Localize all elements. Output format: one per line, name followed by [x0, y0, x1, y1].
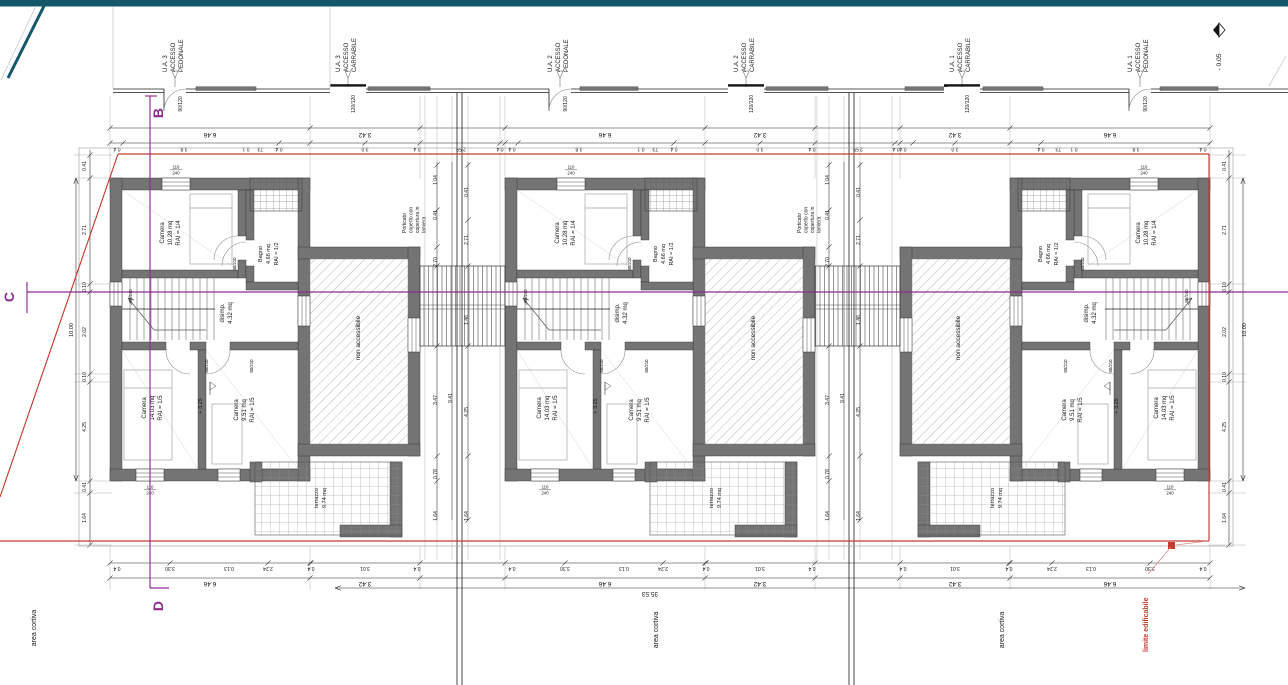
window	[1010, 296, 1022, 326]
sliding-gate-leaf	[728, 84, 764, 86]
room-label: non accessibile	[750, 315, 757, 360]
room-label: Bagno	[258, 246, 264, 262]
wall	[693, 178, 705, 481]
window	[505, 282, 517, 306]
dim-label: 0.41	[825, 210, 831, 220]
access-label-line: ACCESSO	[958, 42, 964, 72]
dim-label: 1.64	[825, 511, 831, 521]
window-size-den: 240	[1140, 170, 1148, 175]
room-label: Camera	[555, 222, 561, 244]
dim-label: 6.46	[598, 580, 611, 587]
room-label: RAI = 1/2	[274, 242, 280, 265]
wall	[517, 270, 633, 278]
porticato-note: Porticato	[797, 213, 803, 233]
area-cortiva-label: area cortiva	[653, 612, 660, 649]
dim-label: 0.4	[307, 565, 314, 571]
room-label: RAI = 1/5	[645, 397, 651, 423]
door-size: 80/210	[1108, 359, 1113, 373]
dim-label: 0.13	[1086, 565, 1096, 571]
dim-label: 1.64	[82, 513, 88, 523]
door-size: 80/210	[249, 359, 254, 373]
room-label: 9.51 mq	[1070, 399, 1076, 421]
room-label: RAI = 1/2	[669, 242, 675, 265]
dim-label: 2.71	[464, 235, 470, 245]
dim-label: 0.4	[808, 146, 815, 152]
dim-label: 9.41	[840, 393, 846, 403]
dim-label: 10.00	[69, 323, 75, 337]
access-label-line: PEDONALE	[179, 39, 185, 72]
dim-label: 3.47	[825, 395, 831, 405]
gate-size-label: 90/120	[1143, 96, 1149, 112]
wall	[298, 178, 310, 481]
gate-size-label: 90/120	[563, 96, 569, 112]
dim-label: 3.0	[756, 146, 763, 152]
dim-label: 1.64	[1222, 513, 1228, 523]
dim-label: .73	[257, 146, 264, 152]
dim-label: 3.01	[755, 565, 765, 571]
dim-label: 0.1	[637, 146, 644, 152]
window-size-num: 110	[568, 165, 575, 170]
dim-label: 3.42	[358, 131, 371, 138]
window-size-num: 110	[1167, 485, 1174, 490]
viewport-top-bar	[0, 0, 1288, 7]
section-marker-b: B	[150, 108, 166, 118]
room-label: Bagno	[653, 246, 659, 262]
window-size: 80/240	[523, 289, 528, 303]
wall	[505, 178, 517, 481]
boundary-label: limite edificabile	[1143, 597, 1150, 652]
room-label: 9.51 mq	[242, 399, 248, 421]
window	[1080, 469, 1102, 481]
room-label: Camera	[629, 399, 635, 421]
gate-opening	[944, 87, 980, 95]
access-label-line: CARRABILE	[352, 38, 358, 72]
dim-label: 4.25	[464, 407, 470, 417]
wall	[517, 342, 561, 350]
porticato-note: coperto con	[409, 207, 415, 233]
window-size-den: 240	[541, 490, 549, 495]
wall	[1066, 266, 1074, 282]
room-label: 4.66 mq	[1046, 244, 1052, 264]
dim-label: 2.71	[1222, 225, 1228, 235]
dim-label: 3.47	[433, 395, 439, 405]
dim-label: 0.41	[82, 482, 88, 492]
fence-wall	[983, 87, 1043, 91]
room-label: RAI = 1/2	[1054, 242, 1060, 265]
dim-label: 6.46	[598, 131, 611, 138]
access-label-unit: U.A. 2	[548, 55, 554, 72]
room-label: 10.28 mq	[563, 220, 569, 245]
dim-label: 3.42	[358, 580, 371, 587]
dim-label: 0.41	[433, 210, 439, 220]
wall	[230, 342, 298, 350]
wall	[1114, 342, 1130, 350]
window-size-den: 240	[172, 170, 180, 175]
dim-label: 0.13	[224, 565, 234, 571]
access-label-unit: U.A. 1	[1128, 55, 1134, 72]
dim-label: 0.78	[825, 469, 831, 479]
dim-label: 0.13	[619, 565, 629, 571]
window	[693, 296, 705, 326]
dim-label: 0.41	[1222, 482, 1228, 492]
window	[408, 318, 420, 352]
wall	[238, 190, 246, 236]
room-label: 4.32 mq	[623, 302, 629, 324]
room-label: RAI = 1/5	[158, 395, 164, 421]
gate-opening	[330, 87, 366, 95]
fence-wall	[1160, 87, 1218, 91]
dim-label: 0.10	[82, 372, 88, 382]
room-label: non accessibile	[355, 315, 362, 360]
dim-label: 1.46	[856, 315, 862, 325]
room-label: non accessibile	[955, 315, 962, 360]
access-label-line: ACCESSO	[344, 42, 350, 72]
wall	[1154, 342, 1198, 350]
dim-label: 1.46	[464, 315, 470, 325]
gate-opening	[164, 87, 186, 95]
access-label-line: CARRABILE	[966, 38, 972, 72]
dim-label: 3.8	[180, 146, 187, 152]
window-size: 80/240	[1184, 289, 1189, 303]
room-label: RAI = 1/4	[176, 220, 182, 246]
boundary-leader-dot	[1168, 542, 1175, 549]
sliding-gate-leaf	[944, 84, 980, 86]
wall	[246, 282, 298, 290]
area-cortiva-label: area cortiva	[999, 612, 1006, 649]
porticato-note: lamiera	[817, 216, 823, 233]
dim-label: 2.02	[1222, 327, 1228, 337]
window-size-den: 240	[1166, 490, 1174, 495]
dim-label: 2.71	[82, 225, 88, 235]
dim-label: 0.4	[413, 146, 420, 152]
room-label: 4.66 mq	[661, 244, 667, 264]
dim-label: 0.4	[892, 146, 899, 152]
room-label: terrazzo	[990, 488, 996, 508]
room-label: 14.03 mq	[150, 395, 156, 420]
door-size: 80/210	[627, 257, 632, 271]
dim-label: 3.0	[951, 146, 958, 152]
access-label-line: CARRABILE	[750, 38, 756, 72]
dim-label: 0.41	[856, 187, 862, 197]
dim-label: 3.42	[948, 580, 961, 587]
dim-label: 0.1	[242, 146, 249, 152]
dim-label: 6.46	[1103, 131, 1116, 138]
dim-label: 4.25	[856, 407, 862, 417]
dim-label: 4.25	[82, 422, 88, 432]
wall	[238, 260, 246, 278]
bath-tiles	[645, 178, 697, 211]
floor-plan-canvas: + 3.25Camera10.28 mqRAI = 1/4Bagno4.66 m…	[0, 0, 1288, 685]
window-size-num: 110	[1141, 165, 1148, 170]
window	[1130, 178, 1158, 190]
dim-label: 0.4	[1199, 565, 1206, 571]
room-label: RAI = 1/5	[553, 395, 559, 421]
porticato-note: copertura in	[415, 206, 421, 233]
dim-label: 3.30	[560, 565, 570, 571]
dim-label: 2.55	[853, 146, 863, 152]
fence-wall	[196, 87, 256, 91]
wall	[1022, 342, 1090, 350]
room-label: Camera	[160, 222, 166, 244]
gate-opening	[549, 87, 571, 95]
section-marker-c: C	[1, 292, 17, 302]
porticato-note: lamiera	[422, 216, 428, 233]
room-label: Camera	[234, 399, 240, 421]
wall	[1082, 270, 1198, 278]
dim-label: 0.4	[670, 146, 677, 152]
wall	[1074, 190, 1082, 236]
level-label: + 3.25	[198, 398, 204, 413]
dim-label: 2.70	[433, 257, 439, 267]
room-label: terrazzo	[709, 488, 715, 508]
window-size-num: 110	[542, 485, 549, 490]
wall	[1022, 282, 1074, 290]
access-label-line: PEDONALE	[1144, 39, 1150, 72]
dim-label: 0.4	[1199, 146, 1206, 152]
wall	[1198, 178, 1210, 481]
porticato-note: Porticato	[402, 213, 408, 233]
dim-label: 1.64	[464, 511, 470, 521]
access-label-line: ACCESSO	[171, 42, 177, 72]
window	[803, 318, 815, 352]
access-label-line: PEDONALE	[564, 39, 570, 72]
wall	[298, 444, 420, 456]
room-label: Camera	[1154, 397, 1160, 419]
wall	[625, 342, 693, 350]
dim-label: 0.41	[1222, 161, 1228, 171]
window-size-den: 240	[567, 170, 575, 175]
fence-wall	[905, 87, 947, 91]
room-label: RAI = 1/4	[1152, 220, 1158, 246]
window	[162, 178, 190, 190]
window	[613, 469, 635, 481]
room-label: Camera	[537, 397, 543, 419]
room-label: 9.51 mq	[637, 399, 643, 421]
dim-label: 3.0	[361, 146, 368, 152]
dim-label: 1.04	[825, 175, 831, 185]
window	[110, 282, 122, 306]
door-size: 80/210	[1063, 359, 1068, 373]
dim-label: 2.71	[856, 235, 862, 245]
wall	[246, 266, 254, 282]
room-label: RAI = 1/5	[1078, 397, 1084, 423]
room-label: disimp.	[220, 303, 226, 322]
access-label-line: ACCESSO	[1136, 42, 1142, 72]
terrazzo-tiles	[255, 462, 402, 535]
window	[557, 178, 585, 190]
dim-label: 3.42	[948, 131, 961, 138]
room-label: 4.66 mq	[266, 244, 272, 264]
wall	[298, 247, 420, 259]
access-label-unit: U.A. 3	[163, 55, 169, 72]
room-label: Bagno	[1038, 246, 1044, 262]
access-label-line: ACCESSO	[742, 42, 748, 72]
porticato-canopy	[815, 266, 900, 346]
window	[218, 469, 240, 481]
dim-label: 0.10	[1222, 282, 1228, 292]
room-label: 4.32 mq	[1092, 302, 1098, 324]
gate-size-label: 120/120	[965, 95, 971, 113]
wall	[122, 270, 238, 278]
dim-label: 0.41	[82, 161, 88, 171]
room-label: RAI = 1/5	[250, 397, 256, 423]
dim-label: .73	[1055, 146, 1062, 152]
dim-label: 1.64	[856, 511, 862, 521]
door-size: 80/210	[644, 359, 649, 373]
fence-wall	[580, 87, 638, 91]
window-size: 80/240	[128, 289, 133, 303]
access-label-unit: U.A. 1	[950, 55, 956, 72]
door-size: 80/210	[204, 359, 209, 373]
room-label: Camera	[142, 397, 148, 419]
room-label: disimp.	[615, 303, 621, 322]
dim-label: 3.01	[950, 565, 960, 571]
dim-label: 0.10	[1222, 372, 1228, 382]
room-label: 10.28 mq	[168, 220, 174, 245]
dim-label: 0.4	[1005, 565, 1012, 571]
dim-label: 0.4	[113, 146, 120, 152]
wall	[900, 444, 1022, 456]
gate-size-label: 90/120	[178, 96, 184, 112]
gate-size-label: 120/120	[351, 95, 357, 113]
section-marker-d: D	[150, 601, 166, 611]
wall	[641, 266, 649, 282]
floor-plan-page: + 3.25Camera10.28 mqRAI = 1/4Bagno4.66 m…	[0, 0, 1288, 685]
dim-label: 0.4	[1037, 146, 1044, 152]
window	[1156, 469, 1184, 481]
room-label: RAI = 1/4	[571, 220, 577, 246]
dim-label: 0.10	[82, 282, 88, 292]
bath-tiles	[1018, 178, 1070, 211]
dim-label: 9.41	[448, 393, 454, 403]
sliding-gate-leaf	[330, 84, 366, 86]
dim-label: 1.64	[433, 511, 439, 521]
terrazzo-tiles	[650, 462, 797, 535]
bath-tiles	[250, 178, 302, 211]
access-label-unit: U.A. 2	[734, 55, 740, 72]
room-label: Camera	[1136, 222, 1142, 244]
elevation-label: - 0.05	[1216, 53, 1223, 70]
wall	[693, 247, 815, 259]
dim-label: 3.42	[753, 131, 766, 138]
level-label: + 3.25	[1114, 398, 1120, 413]
porticato-note: copertura in	[810, 206, 816, 233]
window	[900, 318, 912, 352]
dim-label: 3.01	[360, 565, 370, 571]
dim-label: 0.4	[113, 565, 120, 571]
dim-label: 0.1	[1070, 146, 1077, 152]
gate-opening	[728, 87, 764, 95]
room-label: 9.74 mq	[322, 488, 328, 508]
door-size: 80/210	[1080, 257, 1085, 271]
wall	[190, 342, 206, 350]
wall	[641, 282, 693, 290]
wall	[585, 342, 601, 350]
dim-label: 6.46	[1103, 580, 1116, 587]
dim-label: 0.4	[275, 146, 282, 152]
room-label: 4.32 mq	[228, 302, 234, 324]
dim-label: 0.78	[433, 469, 439, 479]
room-label: 14.03 mq	[545, 395, 551, 420]
access-label-line: ACCESSO	[556, 42, 562, 72]
dim-label: 0.4	[808, 565, 815, 571]
room-label: 14.03 mq	[1162, 395, 1168, 420]
porticato-canopy	[420, 266, 505, 346]
fence-wall	[368, 87, 430, 91]
room-label: RAI = 1/5	[1170, 395, 1176, 421]
room-label: 9.74 mq	[717, 488, 723, 508]
wall	[693, 444, 815, 456]
overall-width-label: 35.53	[641, 590, 658, 597]
wall	[1010, 178, 1022, 481]
dim-label: 0.4	[413, 565, 420, 571]
dim-label: 0.4	[899, 565, 906, 571]
window	[298, 296, 310, 326]
wall	[633, 190, 641, 236]
dim-label: 3.8	[575, 146, 582, 152]
wall	[633, 260, 641, 278]
dim-label: .73	[652, 146, 659, 152]
dim-label: 1.04	[433, 175, 439, 185]
room-label: terrazzo	[314, 488, 320, 508]
dim-label: 3.8	[1132, 146, 1139, 152]
fence-wall	[766, 87, 828, 91]
gate-opening	[1129, 87, 1151, 95]
dim-label: 3.30	[165, 565, 175, 571]
dim-label: 10.00	[1242, 323, 1248, 337]
window	[1198, 282, 1210, 306]
dim-label: 0.4	[508, 146, 515, 152]
room-label: 9.74 mq	[998, 488, 1004, 508]
door-size: 80/210	[599, 359, 604, 373]
porticato-note: coperto con	[804, 207, 810, 233]
dim-label: 4.25	[1222, 422, 1228, 432]
dim-label: 0.41	[464, 187, 470, 197]
room-label: disimp.	[1084, 303, 1090, 322]
level-label: + 3.25	[593, 398, 599, 413]
dim-label: 2.70	[825, 257, 831, 267]
room-label: Camera	[1062, 399, 1068, 421]
window	[531, 469, 559, 481]
gate-size-label: 120/120	[749, 95, 755, 113]
dim-label: 6.46	[203, 580, 216, 587]
dim-label: 2.24	[658, 565, 668, 571]
dim-label: 2.55	[456, 146, 466, 152]
room-label: 10.28 mq	[1144, 220, 1150, 245]
wall	[900, 247, 1022, 259]
window-size-num: 110	[173, 165, 180, 170]
dim-label: 0.4	[702, 565, 709, 571]
access-label-unit: U.A. 3	[336, 55, 342, 72]
dim-label: 2.02	[82, 327, 88, 337]
dim-label: 6.46	[203, 131, 216, 138]
wall	[122, 342, 166, 350]
dim-label: 2.24	[1047, 565, 1057, 571]
dim-label: 0.4	[508, 565, 515, 571]
wall	[110, 178, 122, 481]
dim-label: 0.4	[899, 146, 906, 152]
dim-label: 2.24	[263, 565, 273, 571]
dim-label: 0.4	[496, 146, 503, 152]
area-cortiva-label: area cortiva	[31, 610, 38, 647]
door-size: 80/210	[232, 257, 237, 271]
dim-label: 3.42	[753, 580, 766, 587]
